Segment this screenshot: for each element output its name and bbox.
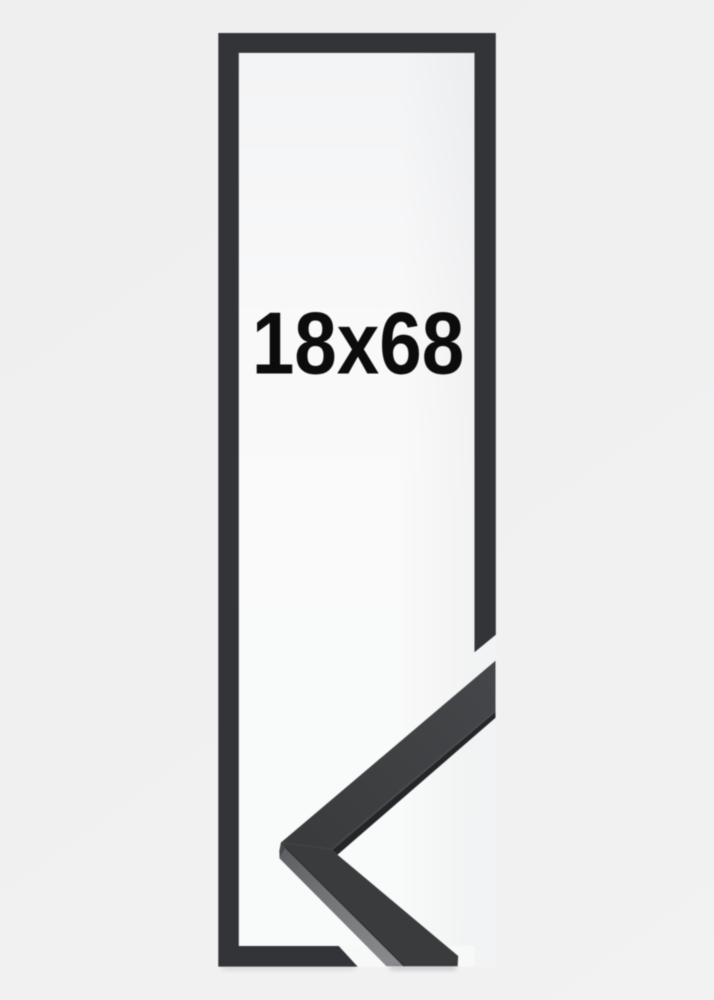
svg-text:18x68: 18x68 [252,294,464,392]
